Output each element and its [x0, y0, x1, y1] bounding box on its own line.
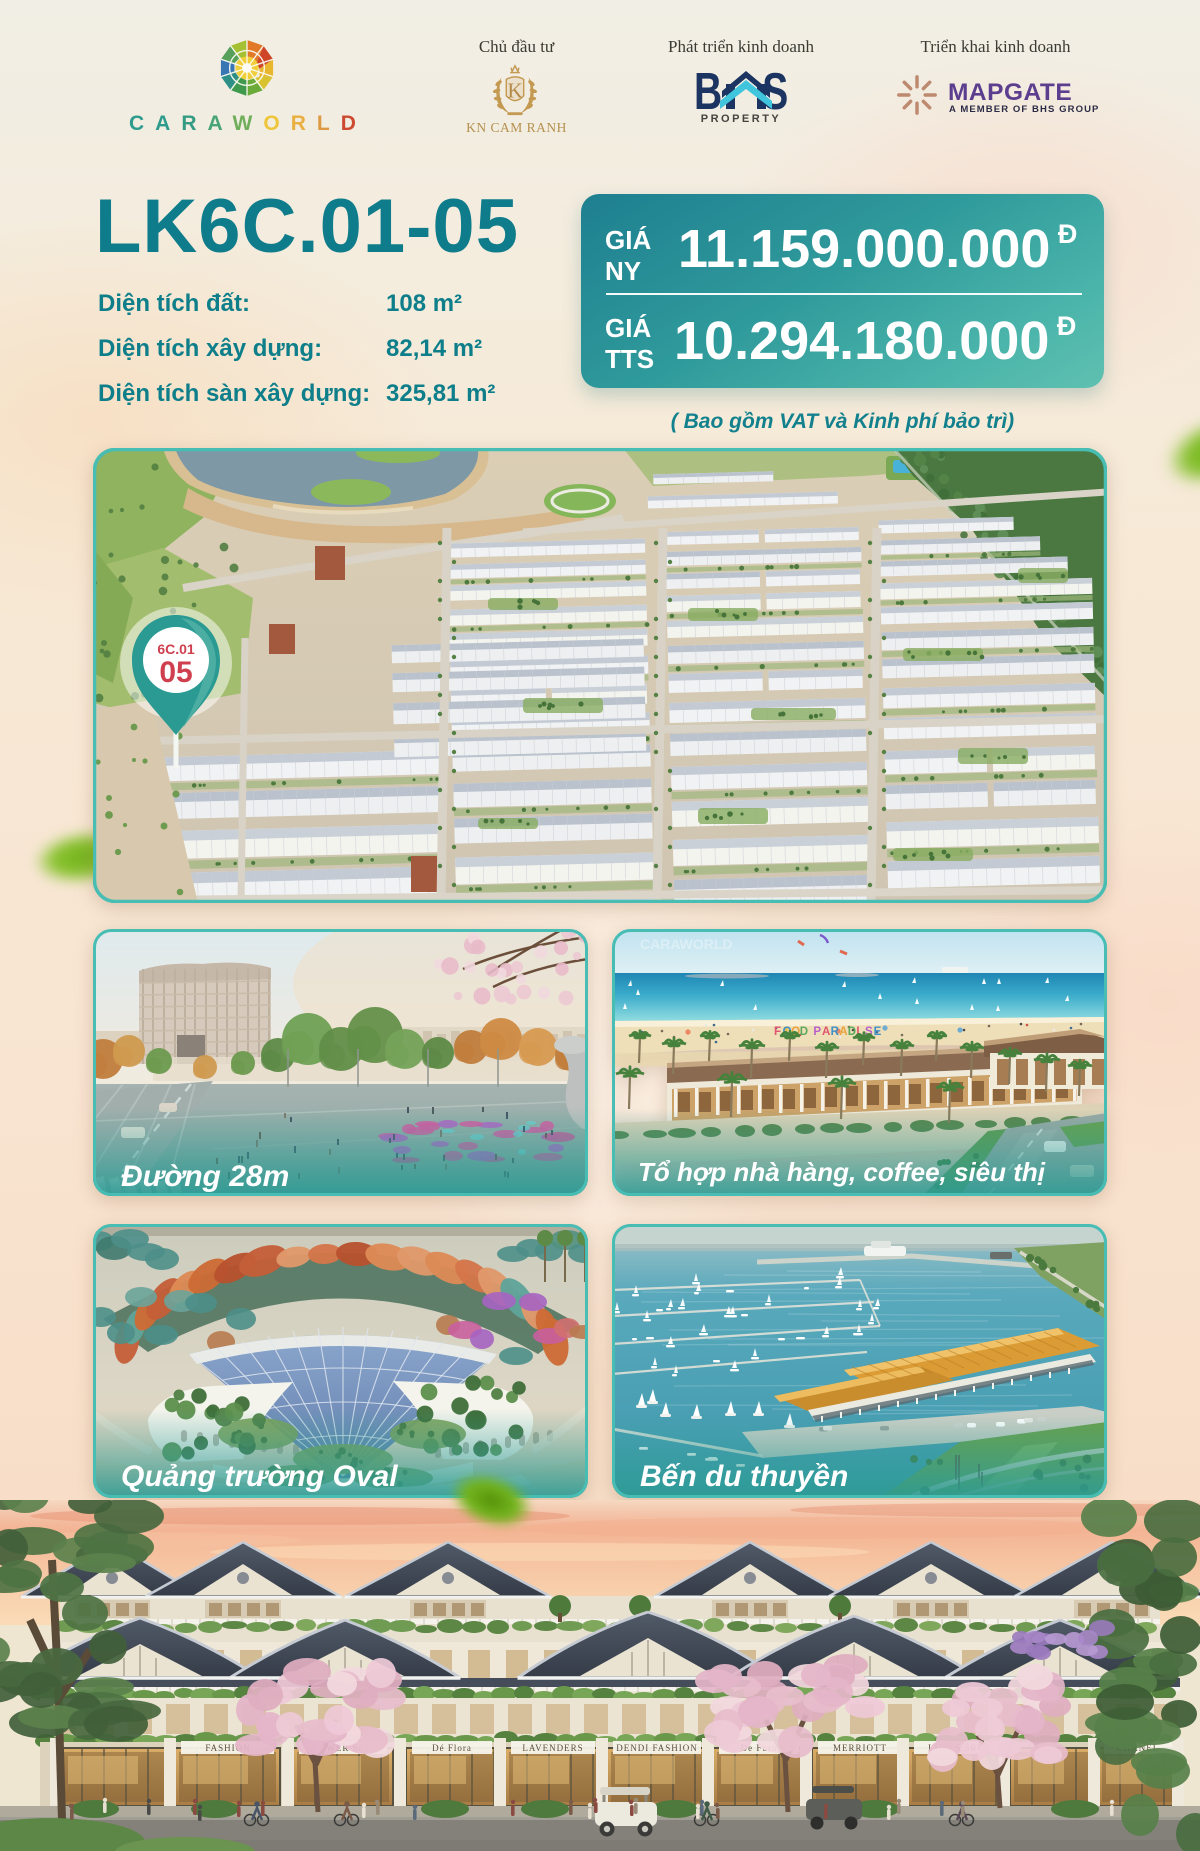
- svg-text:Tổ hợp nhà hàng, coffee, siêu: Tổ hợp nhà hàng, coffee, siêu thị: [638, 1157, 1046, 1187]
- svg-text:05: 05: [159, 656, 192, 689]
- svg-text:Bến du thuyền: Bến du thuyền: [640, 1460, 848, 1493]
- svg-text:6C.01: 6C.01: [157, 641, 195, 657]
- svg-text:D: D: [800, 1026, 808, 1038]
- svg-text:Đường 28m: Đường 28m: [121, 1160, 289, 1193]
- svg-text:CARAWORLD: CARAWORLD: [640, 936, 733, 952]
- svg-text:MERRIOTT: MERRIOTT: [833, 1743, 887, 1753]
- svg-text:Quảng trường Oval: Quảng trường Oval: [121, 1460, 398, 1493]
- svg-text:E: E: [874, 1026, 882, 1038]
- svg-text:F: F: [774, 1026, 781, 1038]
- svg-text:Dé Flora: Dé Flora: [432, 1743, 472, 1753]
- svg-text:P: P: [813, 1026, 821, 1038]
- svg-text:A: A: [822, 1026, 830, 1038]
- svg-text:A: A: [839, 1026, 847, 1038]
- svg-text:B: B: [694, 70, 722, 110]
- svg-text:DENDI FASHION: DENDI FASHION: [616, 1743, 698, 1753]
- svg-text:K: K: [507, 79, 523, 103]
- svg-text:LAVENDERS: LAVENDERS: [522, 1743, 583, 1753]
